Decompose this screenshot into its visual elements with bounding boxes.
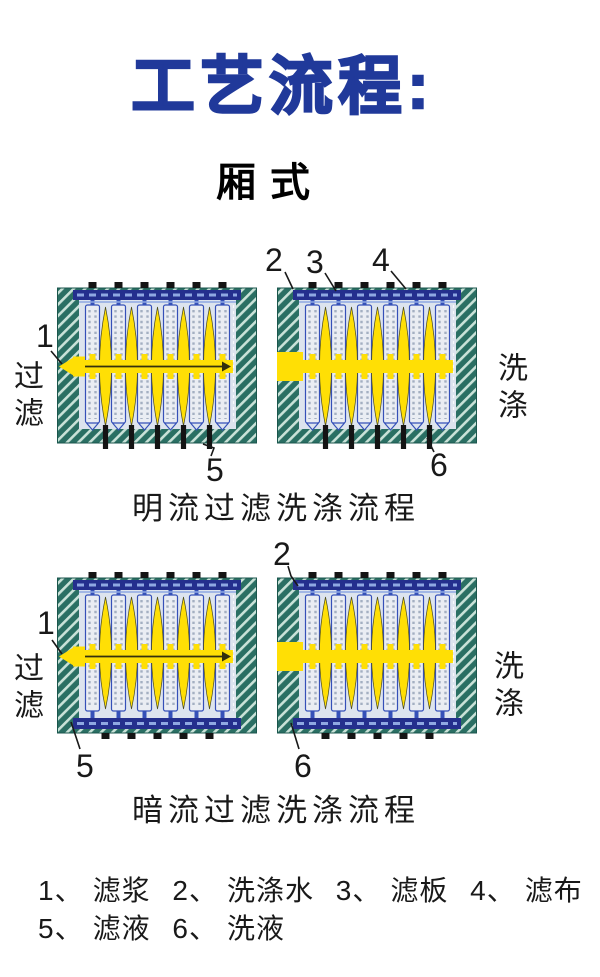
callout-cloth-4: 4 <box>372 244 390 278</box>
legend-item-washliquid: 6、洗液 <box>172 910 285 948</box>
callout-slurry-1: 1 <box>37 607 55 641</box>
drain-nozzle <box>375 425 380 449</box>
side-label-washing: 洗涤 <box>494 352 524 426</box>
top-lug <box>219 572 227 578</box>
drain-nozzle <box>181 425 186 449</box>
top-lug <box>413 572 421 578</box>
bottom-lug <box>348 733 356 739</box>
top-lug <box>193 572 201 578</box>
top-lug <box>309 572 317 578</box>
bottom-lug <box>128 733 136 739</box>
top-lug <box>387 572 395 578</box>
caption-closed-flow: 暗流过滤洗涤流程 <box>0 785 552 830</box>
legend-item-washwater: 2、洗涤水 <box>172 872 314 910</box>
legend-label: 洗涤水 <box>227 875 314 906</box>
top-lug <box>89 282 97 288</box>
top-lug <box>141 282 149 288</box>
legend-item-plate: 3、滤板 <box>336 872 449 910</box>
page-subtitle: 厢式 <box>0 150 540 208</box>
drain-nozzle <box>129 425 134 449</box>
wash-inlet <box>277 642 303 671</box>
bottom-lug <box>426 733 434 739</box>
diagram-closed-flow-washing <box>277 571 477 746</box>
top-lug <box>335 282 343 288</box>
drain-nozzle <box>427 425 432 449</box>
top-lug <box>335 572 343 578</box>
legend-row: 1、滤浆 2、洗涤水 3、滤板 4、滤布 <box>38 872 600 910</box>
drain-nozzle <box>155 425 160 449</box>
caption-open-flow: 明流过滤洗涤流程 <box>0 483 552 528</box>
bottom-lug <box>102 733 110 739</box>
top-lug <box>193 282 201 288</box>
legend-label: 滤布 <box>525 875 583 906</box>
top-lug <box>309 282 317 288</box>
legend-num: 6、 <box>172 913 218 944</box>
side-label-filtration: 过滤 <box>10 360 40 434</box>
callout-washwater-2: 2 <box>273 538 291 572</box>
legend-item-filtrate: 5、滤液 <box>38 910 151 948</box>
top-lug <box>361 572 369 578</box>
callout-washliquid-6: 6 <box>430 449 448 483</box>
legend-num: 2、 <box>172 875 218 906</box>
legend-label: 滤板 <box>390 875 448 906</box>
top-lug <box>167 572 175 578</box>
top-lug <box>167 282 175 288</box>
top-lug <box>439 572 447 578</box>
feed-channel <box>301 650 453 663</box>
legend-num: 1、 <box>38 875 84 906</box>
drain-nozzle <box>207 425 212 449</box>
bottom-lug <box>180 733 188 739</box>
legend-item-slurry: 1、滤浆 <box>38 872 151 910</box>
callout-washwater-2: 2 <box>265 244 283 278</box>
legend-num: 3、 <box>336 875 382 906</box>
top-lug <box>361 282 369 288</box>
top-lug <box>89 572 97 578</box>
legend-label: 滤液 <box>93 913 151 944</box>
bottom-lug <box>206 733 214 739</box>
diagram-closed-flow-filtration <box>57 571 257 746</box>
callout-washliquid-6: 6 <box>294 750 312 784</box>
callout-filtrate-5: 5 <box>76 750 94 784</box>
drain-nozzle <box>323 425 328 449</box>
drain-nozzle <box>349 425 354 449</box>
top-lug <box>115 282 123 288</box>
top-lug <box>219 282 227 288</box>
bottom-lug <box>154 733 162 739</box>
wash-inlet <box>277 352 303 381</box>
legend-item-cloth: 4、滤布 <box>470 872 583 910</box>
top-lug <box>141 572 149 578</box>
legend-num: 5、 <box>38 913 84 944</box>
bottom-lug <box>322 733 330 739</box>
legend-label: 洗液 <box>227 913 285 944</box>
legend-label: 滤浆 <box>93 875 151 906</box>
callout-plate-3: 3 <box>306 246 324 280</box>
top-lug <box>413 282 421 288</box>
top-lug <box>439 282 447 288</box>
feed-channel <box>301 360 453 373</box>
side-label-washing: 洗涤 <box>490 650 520 724</box>
callout-slurry-1: 1 <box>36 320 54 354</box>
diagram-open-flow-filtration <box>57 281 257 456</box>
page-title: 工艺流程: <box>0 36 566 127</box>
legend: 1、滤浆 2、洗涤水 3、滤板 4、滤布 5、滤液 6、洗液 <box>38 872 600 948</box>
legend-num: 4、 <box>470 875 516 906</box>
side-label-filtration: 过滤 <box>10 652 40 726</box>
page: 工艺流程: 厢式 1 2 3 4 5 6 过滤 洗涤 明流过滤洗涤流程 1 2 … <box>0 0 600 977</box>
bottom-lug <box>374 733 382 739</box>
diagram-open-flow-washing <box>277 281 477 456</box>
top-lug <box>387 282 395 288</box>
top-lug <box>115 572 123 578</box>
drain-nozzle <box>401 425 406 449</box>
drain-nozzle <box>103 425 108 449</box>
bottom-lug <box>400 733 408 739</box>
legend-row: 5、滤液 6、洗液 <box>38 910 600 948</box>
